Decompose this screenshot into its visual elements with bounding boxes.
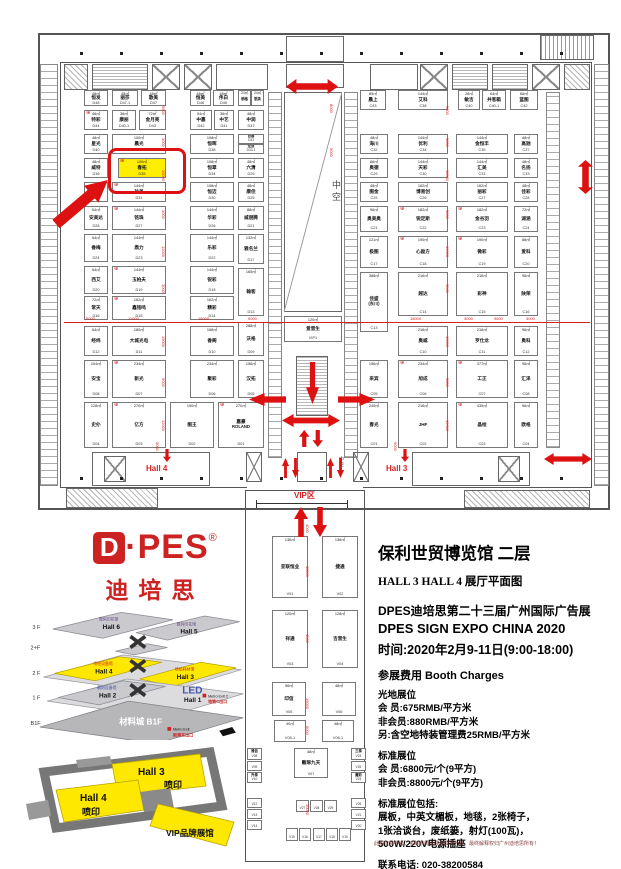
booth-D12: 64㎡经纬D12 [84, 326, 108, 356]
dimension-label: 15000 [444, 170, 450, 200]
pillar-dot [480, 52, 483, 55]
dimension-label: 8000 [328, 104, 334, 134]
booth-V05: 56㎡印信V05 [272, 682, 306, 716]
pillar-dot [520, 52, 523, 55]
exhibition-info-block: 保利世贸博览馆 二层 HALL 3 HALL 4 展厅平面图 DPES迪培思第二… [378, 540, 618, 869]
room [216, 64, 268, 90]
fee-line: 标准展位包括: [378, 798, 618, 811]
booth-V28: V28 [310, 800, 323, 812]
dimension-label: 9600 [444, 106, 450, 136]
stair-block [532, 64, 560, 90]
hall2-caption: 雕刻设备馆 [97, 685, 117, 690]
booth-V24: 魔彩V24 [351, 772, 366, 783]
booth-D01: ⊕270㎡嘉豪ROLANDD01 [218, 402, 264, 448]
booth-V05-1: 40㎡V05-1 [274, 720, 306, 742]
venue-title: 保利世贸博览馆 二层 [378, 540, 618, 564]
plan-label-Hall4: Hall 4 [146, 464, 186, 494]
pillar-dot [280, 52, 283, 55]
pillar-dot [80, 477, 83, 480]
hydrant-icon: ⊕ [400, 207, 404, 212]
booth-charges-header: 参展费用 Booth Charges [378, 667, 618, 683]
hatched-area [564, 64, 590, 90]
booth-C21: 96㎡奥美奥C21 [360, 206, 388, 232]
highlight-pointer-arrow [50, 174, 114, 230]
booth-D40: 48㎡星光D40 [84, 134, 108, 154]
fee-line: 会 员:675RMB/平方米 [378, 702, 618, 715]
booth-C04: 96㎡欧格C04 [514, 402, 538, 448]
hydrant-icon: ⊕ [458, 207, 462, 212]
hall5-caption: 数码印花馆 [177, 621, 197, 626]
hall3-caption: 喷绘耗材馆 [175, 667, 195, 672]
minimap-vip-label: VIP品牌展馆 [166, 828, 214, 838]
plan-label-中空: 中空 [303, 180, 343, 210]
booth-D30: 108㎡恒迈D30 [190, 182, 234, 202]
booth-D20: 64㎡西艾D20 [84, 266, 108, 294]
pillar-dot [400, 52, 403, 55]
booth-VIP1: 120㎡爱普生VIP1 [284, 316, 342, 342]
venue-minimap: Hall 3 喷印 Hall 4 喷印 VIP品牌展馆 [18, 742, 253, 860]
dimension-label: 4000 [304, 634, 310, 664]
dimension-label: 11000 [304, 566, 310, 596]
plan-label-Hall3: Hall 3 [386, 464, 426, 494]
booth-C32: 48㎡海川C32 [360, 134, 388, 154]
booth-D04: 128㎡史仦D04 [84, 402, 108, 448]
hydrant-icon: ⊕ [114, 361, 118, 366]
hall3-label: Hall 3 [177, 674, 195, 681]
booth-C42: 66㎡蓝图C42 [510, 90, 538, 110]
direction-arrow-down [313, 507, 327, 537]
hydrant-icon: ⊕ [220, 403, 224, 408]
booth-C13: 388㎡佳盛(东川)C13 [360, 272, 388, 332]
pillar-dot [240, 477, 243, 480]
fee-line: 会 员:6800元/个(9平方) [378, 763, 618, 776]
floorplan-page: 48㎡恒发D4848㎡丽莎D47-148㎡歌美D4748㎡恒美D4648㎡伟白D… [0, 0, 621, 869]
escalator-block [492, 64, 528, 90]
dimension-label: 3000 [160, 284, 166, 314]
booth-V29: V29 [324, 800, 337, 812]
stair-block [152, 64, 180, 90]
escalator-block [92, 64, 148, 90]
floor-label-b1f: B1F [31, 721, 42, 727]
dimension-label: 3000 [444, 284, 450, 314]
booth-V21: V21 [351, 809, 366, 819]
booth-D25: 48㎡康佳D25 [238, 182, 264, 202]
direction-arrow-right [338, 393, 375, 406]
dimension-label: 3000 [526, 316, 556, 322]
booth-V18: V18 [326, 828, 338, 841]
pillar-dot [80, 52, 83, 55]
booth-D22: 144㎡乐彩D22 [190, 234, 234, 262]
minimap-hall3-caption: 喷印 [164, 779, 182, 790]
booth-朝格: 24㎡朝格 [238, 90, 251, 106]
booth-C07: ⊕377㎡工正C07 [456, 360, 508, 398]
pillar-dot [320, 52, 323, 55]
booth-V10: 升泰V10 [247, 772, 262, 783]
hydrant-icon: ⊕ [114, 267, 118, 272]
dpes-logo-d-icon: D [93, 532, 125, 564]
booth-D10: 168㎡香阁D10 [190, 326, 234, 356]
booth-D46: 48㎡恒美D46 [190, 90, 211, 106]
booth-V03: 120㎡祥通V03 [272, 610, 308, 668]
direction-arrow-down [306, 362, 319, 404]
booth-D29: 48㎡六清D29 [238, 158, 264, 178]
dimension-label: 12000 [444, 246, 450, 276]
booth-C06: ⊕234㎡旭成C06 [398, 360, 448, 398]
booth-V06-1: 48㎡V06-1 [322, 720, 354, 742]
dimension-label: 12000 [160, 420, 166, 450]
floor-label-1f: 1 F [32, 695, 41, 701]
booth-D27: ⊕144㎡铭珠D27 [112, 206, 166, 230]
hydrant-icon: ⊕ [400, 361, 404, 366]
booth-C34: 144㎡优利C34 [398, 134, 448, 154]
corner-marker [219, 727, 236, 736]
dimension-label: 15000 [304, 698, 310, 728]
pillar-dot [160, 52, 163, 55]
dimension-label: 15000 [160, 336, 166, 366]
direction-arrow-left [249, 393, 286, 406]
booth-C15: 216㎡彩神C15 [456, 272, 508, 316]
booth-C33: 48㎡名扬C33 [514, 158, 538, 178]
metro-exit-en: Metro Exit [173, 728, 190, 732]
hydrant-icon: ⊕ [114, 403, 118, 408]
booth-C40: 28㎡敏吉C40 [458, 90, 480, 110]
booth-C17: 121㎡极图C17 [360, 236, 388, 268]
hydrant-icon: ⊕ [114, 207, 118, 212]
booth-D45: 48㎡伟白D45 [213, 90, 234, 106]
booth-D42: 54㎡中嘉D42 [190, 110, 212, 130]
fee-line: 展板，中英文楣板，地毯，2张椅子， [378, 811, 618, 824]
metro-icon [167, 727, 171, 731]
registered-mark: ® [209, 532, 217, 544]
pillar-dot [560, 52, 563, 55]
booth-C23: ⊕182㎡金谷羽C23 [456, 206, 508, 232]
minimap-hall3-label: Hall 3 [138, 767, 165, 778]
booth-D48: 48㎡恒发D48 [84, 90, 108, 106]
booth-V09: V09 [247, 761, 262, 771]
hydrant-icon: ⊕ [458, 361, 462, 366]
booth-V02: 136㎡捷通V02 [322, 536, 358, 598]
dimension-label: 5000 [444, 378, 450, 408]
booth-D08: 104㎡安宝D08 [84, 360, 108, 398]
expo-name-en: DPES SIGN EXPO CHINA 2020 [378, 621, 618, 636]
dimension-label: 10000 [304, 804, 310, 834]
fee-line: 标准展位 [378, 750, 618, 763]
booth-V08: 雅信V08 [247, 748, 262, 760]
stair-block [420, 64, 448, 90]
booth-D37: 48㎡中润D37 [238, 110, 264, 130]
dimension-label: 3000 [444, 210, 450, 240]
booth-C31: 144㎡汇美C31 [456, 158, 508, 178]
booth-D21: 88㎡威朋腾D21 [238, 206, 264, 230]
stair-block [246, 452, 262, 482]
booth-D02: 190㎡图王D02 [170, 402, 214, 448]
booth-D18: 144㎡锐彩D18 [190, 266, 234, 294]
hall4-label: Hall 4 [95, 668, 113, 675]
booth-C29: 66㎡奥德C29 [360, 158, 388, 178]
booth-V25: V25 [351, 761, 366, 771]
pillar-dot [200, 52, 203, 55]
service-strip [594, 64, 609, 486]
booth-V06: 48㎡V06 [322, 682, 356, 716]
venue-3d-floor-diagram: 3 F 2+F 2 F 1 F B1F 数码印花馆 Hall 6 数码印花馆 H… [18, 592, 253, 740]
metro-icon [203, 694, 207, 698]
direction-arrow-up [294, 507, 308, 537]
dimension-label: 5000 [328, 148, 334, 178]
pillar-dot [120, 477, 123, 480]
booth-V19: V19 [339, 828, 351, 841]
fee-line: 1张洽谈台，废纸篓，射灯(100瓦)， [378, 825, 618, 838]
booth-V20: V20 [351, 820, 366, 830]
expo-time: 时间:2020年2月9-11日(9:00-18:00) [378, 639, 618, 658]
booth-D33-1: 宏迪D33-1 [238, 144, 264, 154]
booth-D07: ⊕234㎡新光D07 [112, 360, 166, 398]
booth-C18: ⊕190㎡心励方C18 [398, 236, 448, 268]
booth-C02: 216㎡JHFC02 [398, 402, 448, 448]
metro-exit-c-en: Metro Exit C [208, 694, 229, 698]
dimension-label: 3000 [444, 138, 450, 168]
disclaimer-note: 此图仅供参考，实际布局以展会现场为准，最终解释权归广州迪培思所有！ [374, 840, 614, 847]
booth-C38: 144㎡艾科C38 [398, 90, 448, 110]
dimension-line-red [64, 322, 590, 323]
booth-D09: 288㎡沃格D09 [238, 322, 264, 356]
booth-D47-1: 48㎡丽莎D47-1 [112, 90, 138, 106]
dimension-label: 15000 [444, 336, 450, 366]
hatched-area [66, 488, 158, 508]
booth-V26: V26 [351, 798, 366, 808]
hatched-area [64, 64, 88, 90]
pillar-dot [360, 477, 363, 480]
dimension-label: 12000 [444, 420, 450, 450]
booth-D23: 144㎡鼎力D23 [112, 234, 166, 262]
floor-label-3f: 3 F [32, 625, 41, 631]
floor-label-2f: 2 F [32, 671, 41, 677]
booth-D41: 36㎡中艺D41 [214, 110, 234, 130]
dimension-label: 12000 [160, 246, 166, 276]
stair-block [498, 456, 520, 482]
booth-C12: 96㎡奥科C12 [514, 326, 538, 356]
metro-exit-cn: 新港东出口 [172, 731, 193, 737]
direction-arrow-udpair [299, 430, 323, 447]
highlight-rectangle [108, 148, 186, 194]
booth-V15: V15 [286, 828, 298, 841]
hall2-label: Hall 2 [99, 692, 117, 699]
fee-line: 联系电话: 020-38200584 [378, 859, 618, 869]
booth-D44: ⊕46㎡特彩D44 [84, 110, 108, 130]
booth-D40-1: 36㎡康丽D40-1 [112, 110, 136, 130]
dimension-label: 3000 [160, 210, 166, 240]
pillar-dot [520, 477, 523, 480]
booth-C11: 216㎡罗仕龙C11 [456, 326, 508, 356]
booth-D11: 180㎡大城光电D11 [112, 326, 166, 356]
booth-D33: 百春D33 [238, 134, 264, 144]
pillar-dot [240, 52, 243, 55]
pillar-dot [560, 477, 563, 480]
booth-C26: 162㎡博易创C26 [398, 182, 448, 202]
pillar-dot [200, 477, 203, 480]
booth-D34: 108㎡恒翠D34 [190, 158, 234, 178]
pillar-dot [480, 477, 483, 480]
booth-V17: V17 [313, 828, 325, 841]
hall5-label: Hall 5 [180, 629, 198, 636]
dimension-label: 5000 [160, 378, 166, 408]
fee-line: 非会员:8800元/个(9平方) [378, 777, 618, 790]
room [286, 36, 344, 62]
direction-arrow-lr [544, 453, 592, 465]
room [370, 64, 418, 90]
expo-name-cn: DPES迪培思第二十三届广州国际广告展 [378, 602, 618, 619]
dimension-label: 11000 [128, 316, 158, 322]
direction-arrow-lr [282, 414, 340, 427]
direction-arrow-lr [286, 79, 338, 94]
fee-line: 另:含空地特装管理费25RMB/平方米 [378, 729, 618, 742]
minimap-hall4-caption: 喷印 [82, 806, 100, 817]
booth-C08: 96㎡汇泽C08 [514, 360, 538, 398]
booth-C40-1: 64㎡井客箱C40-1 [482, 90, 506, 110]
booth-C10: 216㎡奥威C10 [398, 326, 448, 356]
booth-C01: 240㎡春光C01 [360, 402, 388, 448]
booth-D24: 64㎡香梅D24 [84, 234, 108, 262]
booth-C24: 72㎡湖涵C24 [514, 206, 538, 232]
booth-D19: ⊕144㎡玉柏夫D19 [112, 266, 166, 294]
escalator-block [452, 64, 488, 90]
dimension-label: 9600 [494, 316, 524, 322]
fee-line: 非会员:880RMB/平方米 [378, 716, 618, 729]
dpes-logo-wordmark: D·PES® [55, 528, 255, 567]
booth-V01: 136㎡亚联恒业V01 [272, 536, 308, 598]
booth-C20: 88㎡爱科C20 [514, 236, 538, 268]
staircase [540, 35, 594, 60]
booth-C37: 48㎡高驰C37 [514, 134, 538, 154]
hydrant-icon: ⊕ [458, 237, 462, 242]
dimension-label: 5000 [86, 316, 116, 322]
booth-C19: ⊕190㎡微彩C19 [456, 236, 508, 268]
booth-C22: ⊕182㎡锐定斯C22 [398, 206, 448, 232]
hall4-caption: 喷绘设备馆 [93, 661, 113, 666]
service-strip [40, 64, 58, 486]
booth-C03: ⊕435㎡晶绘C03 [456, 402, 508, 448]
dimension-label: 5000 [304, 726, 310, 756]
direction-arrow-udpair [282, 458, 299, 478]
booth-C27: 162㎡丽彩C27 [456, 182, 508, 202]
booth-V14: V14 [247, 820, 262, 830]
hydrant-icon: ⊕ [400, 237, 404, 242]
dimension-label: 9600 [160, 106, 166, 136]
booth-D13: 165㎡翰客D13 [238, 268, 264, 316]
booth-D47: 48㎡歌美D47 [141, 90, 166, 106]
pillar-dot [440, 477, 443, 480]
booth-银美: 24㎡银美 [251, 90, 264, 106]
hatched-area [464, 490, 590, 508]
pillar-dot [120, 52, 123, 55]
booth-D06: 234㎡聚彩D06 [190, 360, 234, 398]
dimension-label: 18000 [410, 316, 440, 322]
led-label: LED [182, 686, 202, 697]
direction-arrow-down [401, 449, 409, 462]
booth-V12: V12 [247, 798, 262, 808]
metro-exit-c-cn: 地铁C出口 [208, 698, 227, 704]
dimension-label: 5000 [248, 316, 278, 322]
booth-D26: 144㎡华彩D26 [190, 206, 234, 230]
pillar-dot [440, 52, 443, 55]
booth-C14: 216㎡越达C14 [398, 272, 448, 316]
booth-V13: V13 [247, 809, 262, 819]
hall6-caption: 数码印花馆 [99, 617, 119, 622]
dimension-label: 3000 [464, 316, 494, 322]
dimension-label: 18000 [198, 316, 228, 322]
b1f-materials-label: 材料城 B1F [118, 716, 162, 726]
booth-V04: 128㎡吉普生V04 [322, 610, 358, 668]
booth-V07: 48㎡雕琢九天V07 [294, 748, 328, 778]
hall-subtitle: HALL 3 HALL 4 展厅平面图 [378, 573, 618, 589]
booth-D17: 132㎡雅名兰D17 [238, 234, 264, 264]
booth-V23: 三泰V23 [351, 748, 366, 760]
booth-C30: 144㎡天彩C30 [398, 158, 448, 178]
direction-arrow-udpair [327, 458, 344, 478]
booth-C16: 96㎡陕荣C16 [514, 272, 538, 316]
direction-arrow-down [163, 449, 171, 462]
hydrant-icon: ⊕ [458, 403, 462, 408]
fee-line: 光地展位 [378, 689, 618, 702]
service-strip [546, 92, 560, 448]
direction-arrow-ud [578, 160, 593, 194]
floor-label-2plus: 2+F [31, 645, 41, 651]
booth-C28: 48㎡佳彩C28 [514, 182, 538, 202]
hall1-label: Hall 1 [184, 697, 202, 704]
stair-block [184, 64, 212, 90]
pillar-dot [360, 52, 363, 55]
hall6-label: Hall 6 [103, 624, 121, 631]
hydrant-icon: ⊕ [86, 111, 90, 116]
minimap-hall4-label: Hall 4 [80, 793, 107, 804]
booth-C35: 144㎡金恒丰C35 [456, 134, 508, 154]
booth-C43: 85㎡晨上C43 [360, 90, 386, 110]
booth-C25: 48㎡图金C25 [360, 182, 388, 202]
hydrant-icon: ⊕ [114, 297, 118, 302]
booth-D38: 108㎡恒晖D38 [190, 134, 234, 154]
